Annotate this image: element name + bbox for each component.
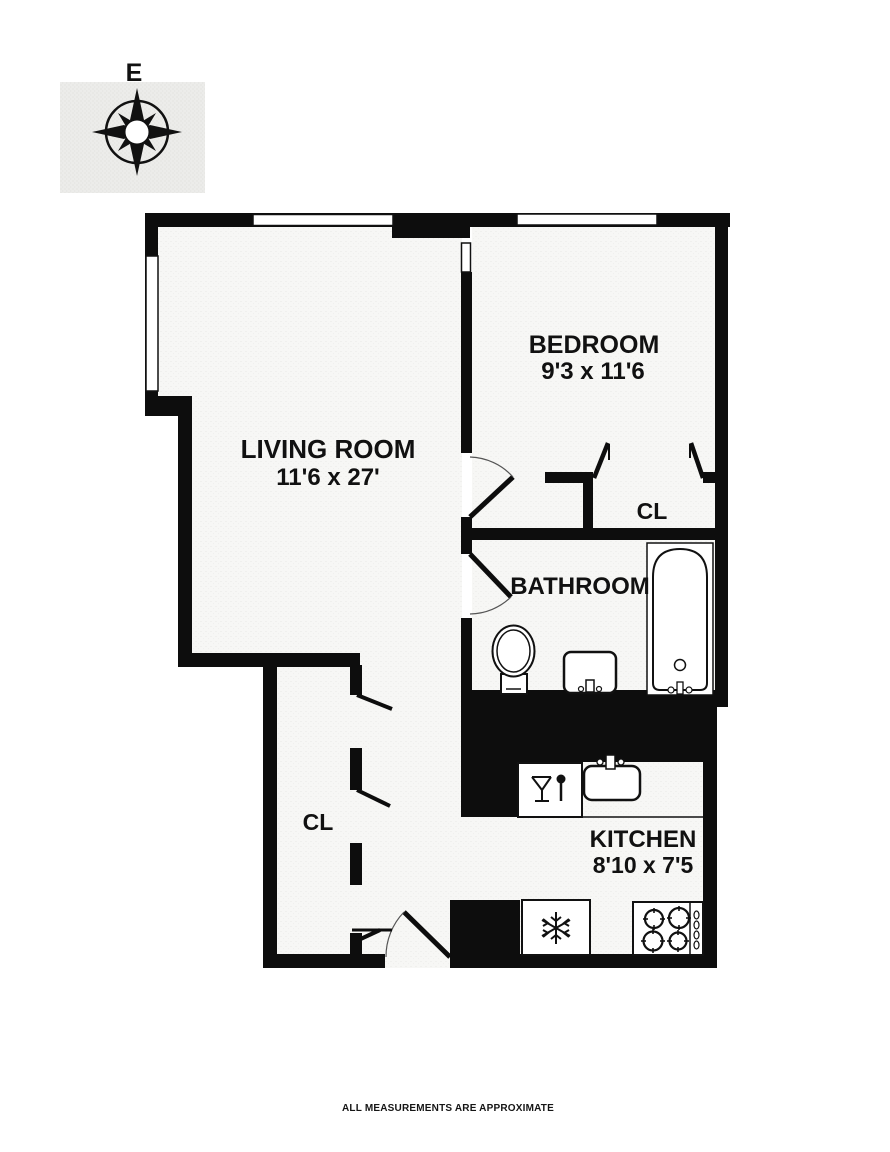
- wall-partition-lower: [461, 618, 472, 695]
- wall-partition-upper: [461, 272, 472, 453]
- wall-right: [715, 213, 728, 707]
- wall-closet-right-jamb: [703, 472, 715, 483]
- floor-plan-page: E: [0, 0, 890, 1152]
- wall-kitchen-top-band: [461, 707, 717, 762]
- bedroom-dimensions: 9'3 x 11'6: [541, 358, 645, 385]
- compass-rose: E: [60, 59, 205, 193]
- wall-closet-partition-stub: [583, 472, 593, 535]
- dishwasher-icon: [518, 763, 582, 817]
- living-room-floor-upper: [158, 227, 462, 416]
- kitchen-label: KITCHEN: [590, 826, 697, 853]
- wall-kitchen-lower-left-block: [450, 900, 520, 955]
- bedroom-label: BEDROOM: [529, 331, 660, 359]
- bedroom-window: [517, 214, 657, 225]
- kitchen-dimensions: 8'10 x 7'5: [593, 852, 694, 878]
- wall-kitchen-right: [703, 707, 717, 968]
- left-wall-window: [146, 256, 158, 391]
- bathtub-icon: [647, 543, 713, 695]
- wall-bottom-left: [263, 954, 385, 968]
- hall-closet-label: CL: [303, 809, 334, 835]
- living-room-dimensions: 11'6 x 27': [276, 464, 380, 491]
- wall-bottom-right: [450, 954, 717, 968]
- refrigerator-icon: [522, 900, 590, 955]
- bedroom-closet-label: CL: [637, 498, 668, 524]
- floor-plan-drawing: E: [0, 0, 890, 1152]
- wall-bathroom-top: [461, 528, 728, 540]
- compass-direction-label: E: [126, 59, 143, 87]
- bathroom-label: BATHROOM: [510, 573, 650, 600]
- wall-left-mid: [178, 410, 192, 667]
- living-room-label: LIVING ROOM: [241, 434, 416, 464]
- partition-wall-slot: [462, 243, 471, 272]
- wall-closet-left: [263, 665, 277, 968]
- wall-bedroom-bottom: [545, 472, 583, 483]
- wall-livingroom-bottom: [178, 653, 360, 667]
- bathroom-sink-icon: [564, 652, 616, 693]
- measurements-disclaimer: ALL MEASUREMENTS ARE APPROXIMATE: [342, 1103, 554, 1114]
- wall-partition-top-block: [392, 213, 470, 238]
- wall-kitchen-left-block: [461, 762, 517, 817]
- living-room-window: [253, 215, 393, 226]
- stove-4-burner-icon: [633, 902, 703, 955]
